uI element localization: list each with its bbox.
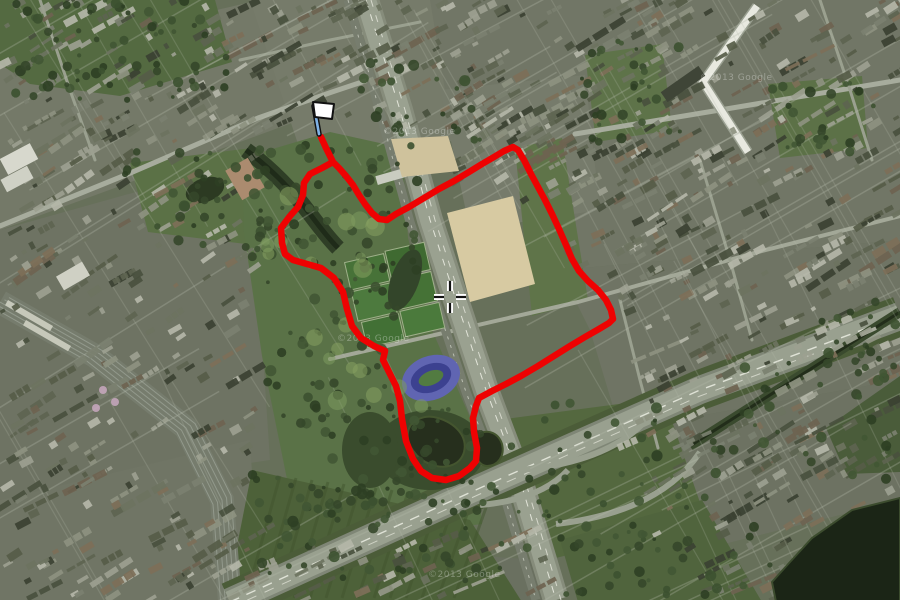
map-watermark: ©2013 Google bbox=[428, 570, 501, 580]
satellite-map-canvas[interactable]: ©2013 Google©2013 Google©2013 Google©201… bbox=[0, 0, 900, 600]
map-watermark: ©2013 Google bbox=[383, 127, 456, 137]
map-viewport[interactable]: ©2013 Google©2013 Google©2013 Google©201… bbox=[0, 0, 900, 600]
flag-icon bbox=[313, 102, 334, 119]
map-watermark: ©2013 Google bbox=[700, 73, 773, 83]
